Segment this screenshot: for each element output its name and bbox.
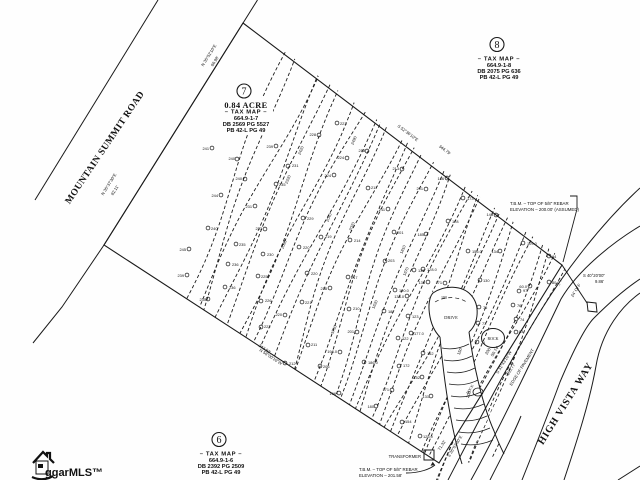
svg-text:217: 217 [371,185,378,190]
svg-text:219: 219 [325,234,332,239]
svg-text:223: 223 [340,121,347,126]
svg-text:190.0: 190.0 [399,288,410,293]
svg-text:ggarMLS™: ggarMLS™ [45,467,103,479]
svg-text:T.B.M. – TOP OF 5/8" REBAR: T.B.M. – TOP OF 5/8" REBAR [359,467,418,472]
svg-text:ELEVATION – 200.00' (ASSUMED): ELEVATION – 200.00' (ASSUMED) [510,207,580,212]
svg-text:213: 213 [393,166,400,171]
svg-text:122: 122 [402,336,409,341]
svg-text:TRANSFORMER: TRANSFORMER [389,454,421,459]
svg-text:210: 210 [353,306,360,311]
svg-text:206: 206 [323,364,330,369]
svg-text:236: 236 [229,285,236,290]
svg-text:221: 221 [305,300,312,305]
svg-text:211: 211 [311,342,317,347]
svg-text:ELEVATION – 201.58': ELEVATION – 201.58' [359,473,402,478]
svg-text:130: 130 [483,278,490,283]
svg-text:241: 241 [203,146,210,151]
svg-text:133.0: 133.0 [394,294,405,299]
svg-text:156.0: 156.0 [472,249,483,254]
svg-text:186: 186 [438,176,445,181]
svg-text:220: 220 [303,245,310,250]
svg-text:8: 8 [495,40,500,51]
svg-text:80.0: 80.0 [552,280,560,285]
svg-text:236: 236 [232,262,239,267]
svg-text:152: 152 [414,375,421,380]
svg-text:201: 201 [417,186,424,191]
svg-text:177.0: 177.0 [414,331,425,336]
svg-text:229: 229 [307,216,314,221]
svg-text:76: 76 [517,303,521,308]
svg-text:123: 123 [412,314,419,319]
svg-text:83: 83 [519,329,523,334]
svg-text:154: 154 [405,419,412,424]
svg-text:178: 178 [452,219,459,224]
svg-text:201: 201 [397,230,404,235]
svg-text:134: 134 [492,249,499,254]
svg-text:135: 135 [418,268,425,273]
svg-text:187: 187 [388,309,395,314]
svg-text:– TAX MAP –: – TAX MAP – [225,110,268,116]
svg-text:212: 212 [289,361,296,366]
svg-text:171: 171 [383,387,390,392]
svg-text:240: 240 [211,226,218,231]
svg-text:DRIVE: DRIVE [444,315,458,320]
svg-text:PB 42-L PG 49: PB 42-L PG 49 [202,470,241,476]
svg-text:230: 230 [267,252,274,257]
svg-text:– TAX MAP –: – TAX MAP – [200,452,243,458]
svg-text:220: 220 [311,271,318,276]
svg-text:231: 231 [292,163,299,168]
svg-text:235: 235 [200,297,207,302]
svg-text:138: 138 [419,280,426,285]
svg-text:225: 225 [261,274,268,279]
svg-text:S 40°20'00": S 40°20'00" [583,273,605,278]
svg-text:178.0: 178.0 [427,267,438,272]
svg-text:125.0: 125.0 [423,434,434,439]
svg-text:240: 240 [236,176,243,181]
svg-text:203: 203 [388,258,395,263]
svg-text:244: 244 [212,193,219,198]
svg-text:71: 71 [481,340,485,345]
svg-text:171: 171 [436,280,443,285]
svg-text:218: 218 [321,286,328,291]
svg-text:235: 235 [239,242,246,247]
svg-text:226: 226 [265,298,272,303]
svg-text:228: 228 [310,132,317,137]
svg-text:217: 217 [351,275,358,280]
svg-text:224: 224 [325,173,332,178]
svg-text:75: 75 [483,305,487,310]
svg-text:233: 233 [256,226,263,231]
svg-text:190: 190 [441,295,447,300]
svg-text:220: 220 [276,312,283,317]
svg-text:T.B.M. – TOP OF 5/8" REBAR: T.B.M. – TOP OF 5/8" REBAR [510,201,569,206]
svg-text:0.84 ACRE: 0.84 ACRE [224,101,267,110]
svg-text:60.0: 60.0 [519,284,527,289]
svg-text:– TAX MAP –: – TAX MAP – [478,57,521,63]
svg-text:224: 224 [338,155,345,160]
svg-text:201: 201 [348,329,355,334]
svg-text:240: 240 [229,156,236,161]
svg-text:173: 173 [467,196,474,201]
svg-text:ROCK: ROCK [487,336,498,341]
svg-text:196: 196 [330,391,337,396]
svg-text:180: 180 [368,404,375,409]
svg-text:131: 131 [423,394,430,399]
svg-text:6: 6 [217,435,222,446]
svg-text:PB 42-L PG 49: PB 42-L PG 49 [227,128,266,134]
svg-text:245: 245 [180,247,187,252]
svg-text:211: 211 [379,207,385,212]
svg-text:109.0: 109.0 [527,241,538,246]
svg-text:73: 73 [482,321,486,326]
svg-text:148: 148 [487,212,494,217]
svg-text:186.0: 186.0 [368,360,379,365]
svg-text:172: 172 [403,363,410,368]
svg-text:222: 222 [264,324,271,329]
svg-text:185: 185 [418,232,425,237]
svg-text:198.0: 198.0 [327,349,338,354]
svg-text:162: 162 [427,351,434,356]
svg-text:PB 42-L PG 49: PB 42-L PG 49 [480,75,519,81]
svg-text:9.86': 9.86' [595,279,604,284]
svg-text:239: 239 [267,144,274,149]
svg-text:7: 7 [242,87,247,98]
svg-text:214: 214 [354,238,361,243]
svg-text:231: 231 [246,204,253,209]
svg-text:218: 218 [359,148,366,153]
svg-text:239: 239 [178,273,185,278]
